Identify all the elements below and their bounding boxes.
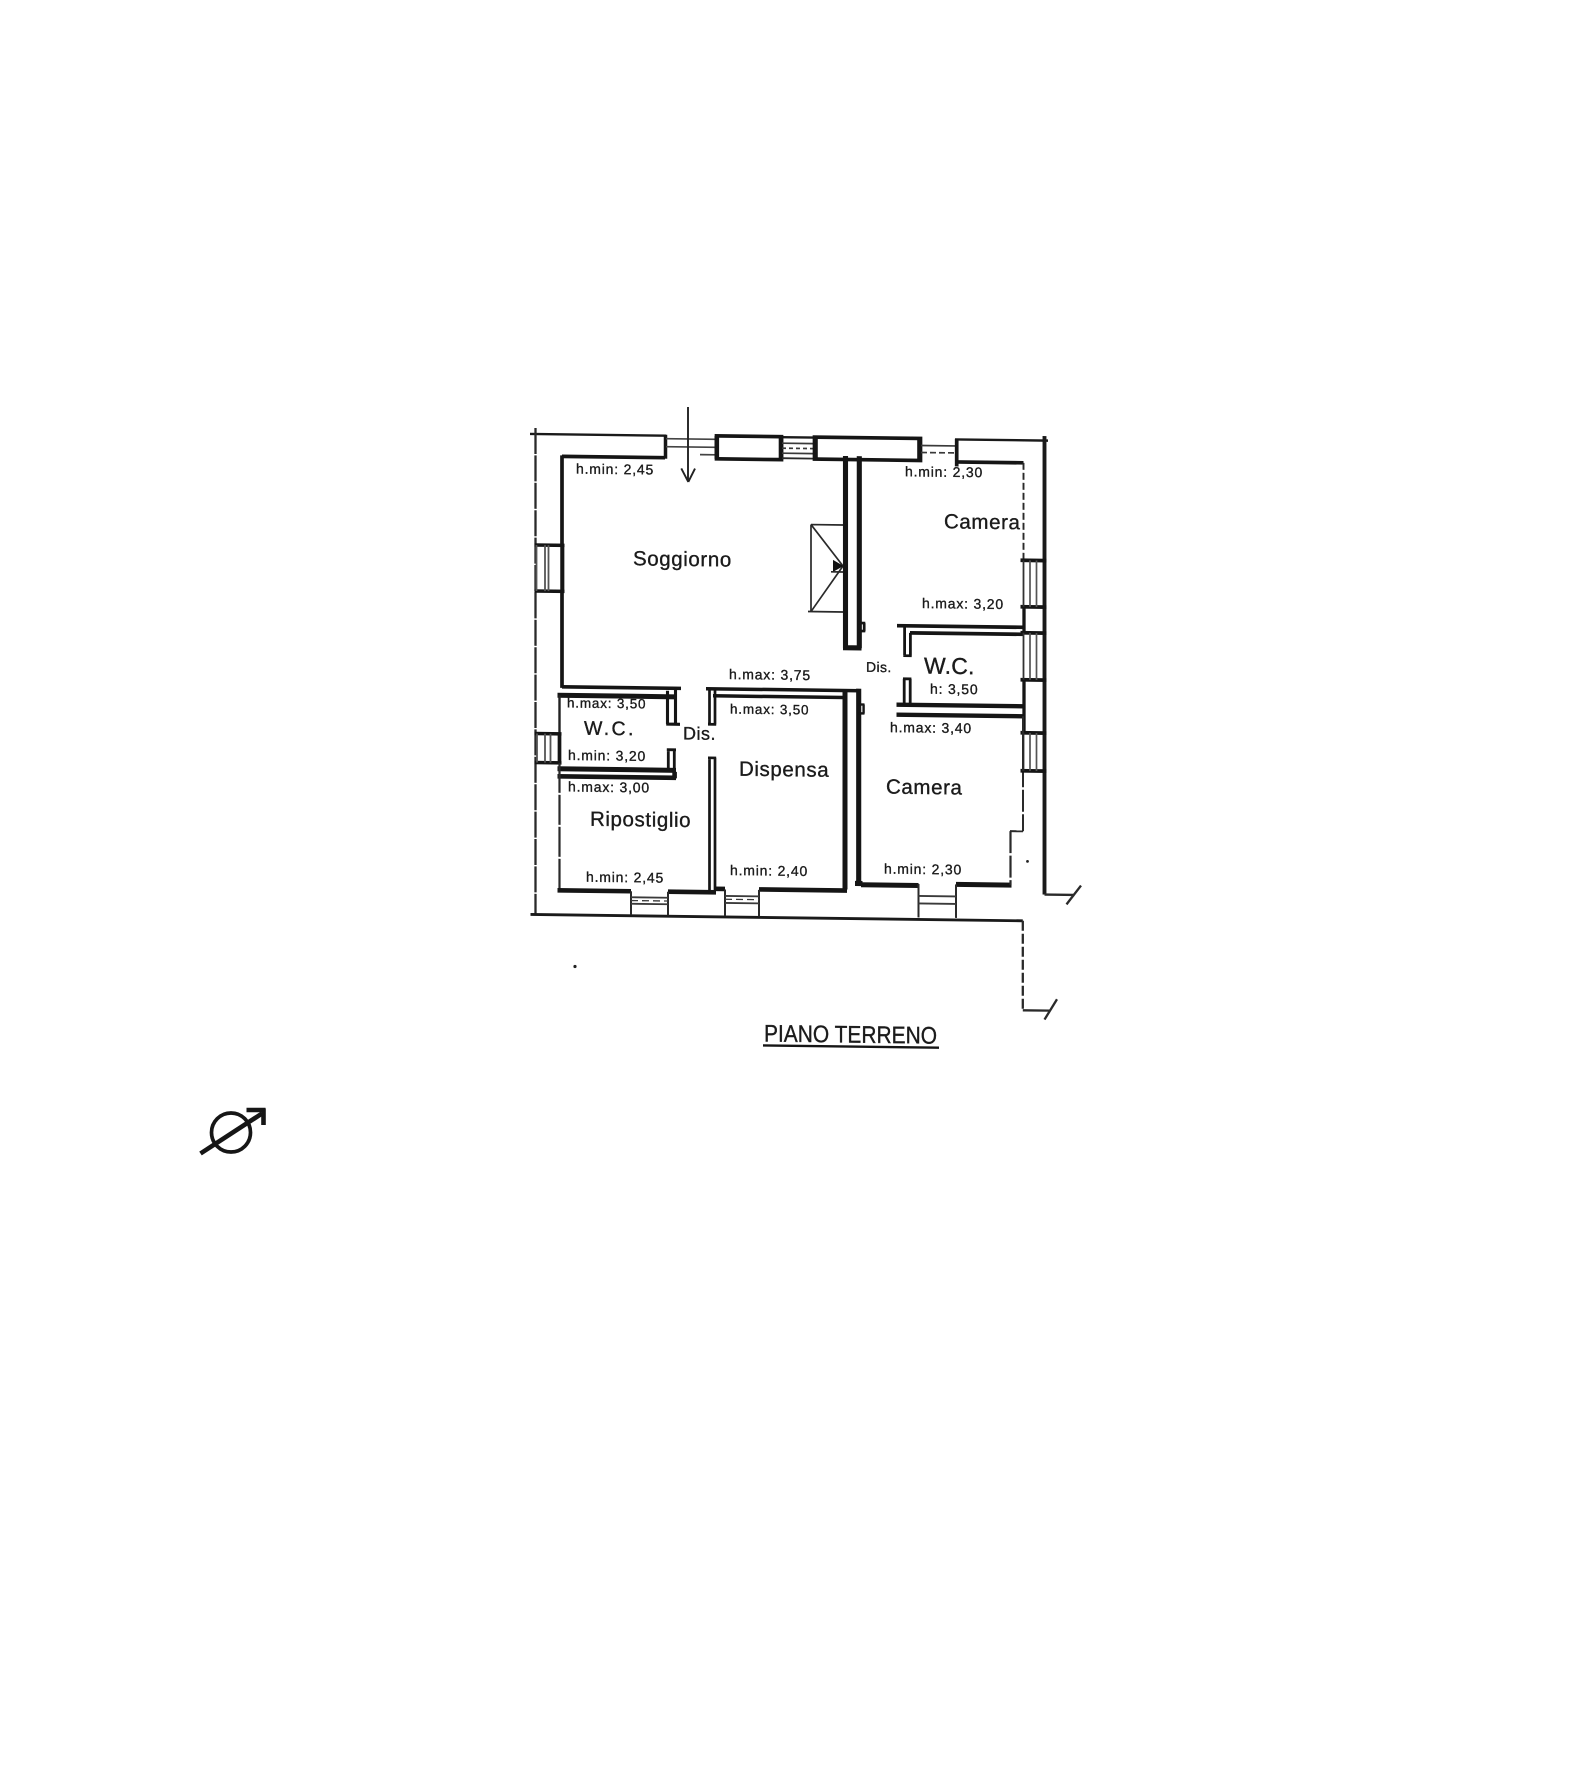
svg-text:Dis.: Dis. — [866, 659, 892, 675]
svg-text:h.min: 2,30: h.min: 2,30 — [884, 861, 962, 878]
svg-text:Dispensa: Dispensa — [739, 758, 829, 782]
svg-text:Camera: Camera — [886, 776, 963, 800]
svg-text:Soggiorno: Soggiorno — [633, 547, 732, 571]
svg-text:Camera: Camera — [944, 510, 1021, 534]
svg-text:h.min: 3,20: h.min: 3,20 — [568, 747, 646, 764]
svg-text:Dis.: Dis. — [683, 723, 716, 743]
svg-text:W.C.: W.C. — [584, 718, 636, 741]
svg-text:h.min: 2,45: h.min: 2,45 — [576, 461, 654, 478]
svg-text:h.max: 3,20: h.max: 3,20 — [922, 595, 1004, 612]
svg-text:h.max: 3,50: h.max: 3,50 — [730, 702, 809, 718]
svg-text:h: 3,50: h: 3,50 — [930, 681, 978, 698]
svg-text:h.min: 2,40: h.min: 2,40 — [730, 862, 808, 879]
svg-text:h.min: 2,30: h.min: 2,30 — [905, 463, 983, 480]
svg-text:W.C.: W.C. — [924, 653, 975, 680]
svg-text:h.max: 3,50: h.max: 3,50 — [567, 695, 646, 711]
svg-text:h.max: 3,75: h.max: 3,75 — [729, 666, 811, 683]
svg-text:Ripostiglio: Ripostiglio — [590, 808, 691, 832]
svg-text:h.max: 3,40: h.max: 3,40 — [890, 719, 972, 736]
svg-text:h.max: 3,00: h.max: 3,00 — [568, 778, 650, 795]
svg-text:h.min: 2,45: h.min: 2,45 — [586, 869, 664, 886]
